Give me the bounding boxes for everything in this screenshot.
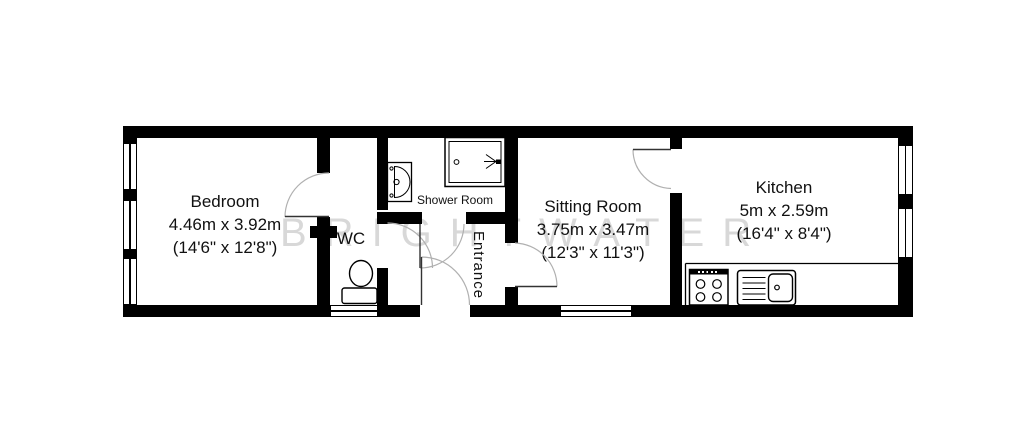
doors bbox=[285, 150, 671, 306]
door-arc-entrance bbox=[422, 257, 470, 305]
washbasin-icon bbox=[388, 163, 412, 202]
door-arc-kitchen bbox=[633, 150, 671, 189]
symbols-overlay bbox=[0, 0, 1024, 444]
door-arc-sitting-room bbox=[515, 243, 557, 287]
shower-tray-icon bbox=[445, 138, 505, 187]
door-arc-bedroom bbox=[285, 173, 329, 217]
sink-icon bbox=[738, 271, 796, 306]
hob-icon bbox=[690, 270, 729, 306]
floorplan: BRIGHTWATER Bedroom 4.46m x 3.92m (14'6"… bbox=[0, 0, 1024, 444]
toilet-icon bbox=[342, 261, 377, 304]
door-arc-wc bbox=[388, 223, 433, 268]
